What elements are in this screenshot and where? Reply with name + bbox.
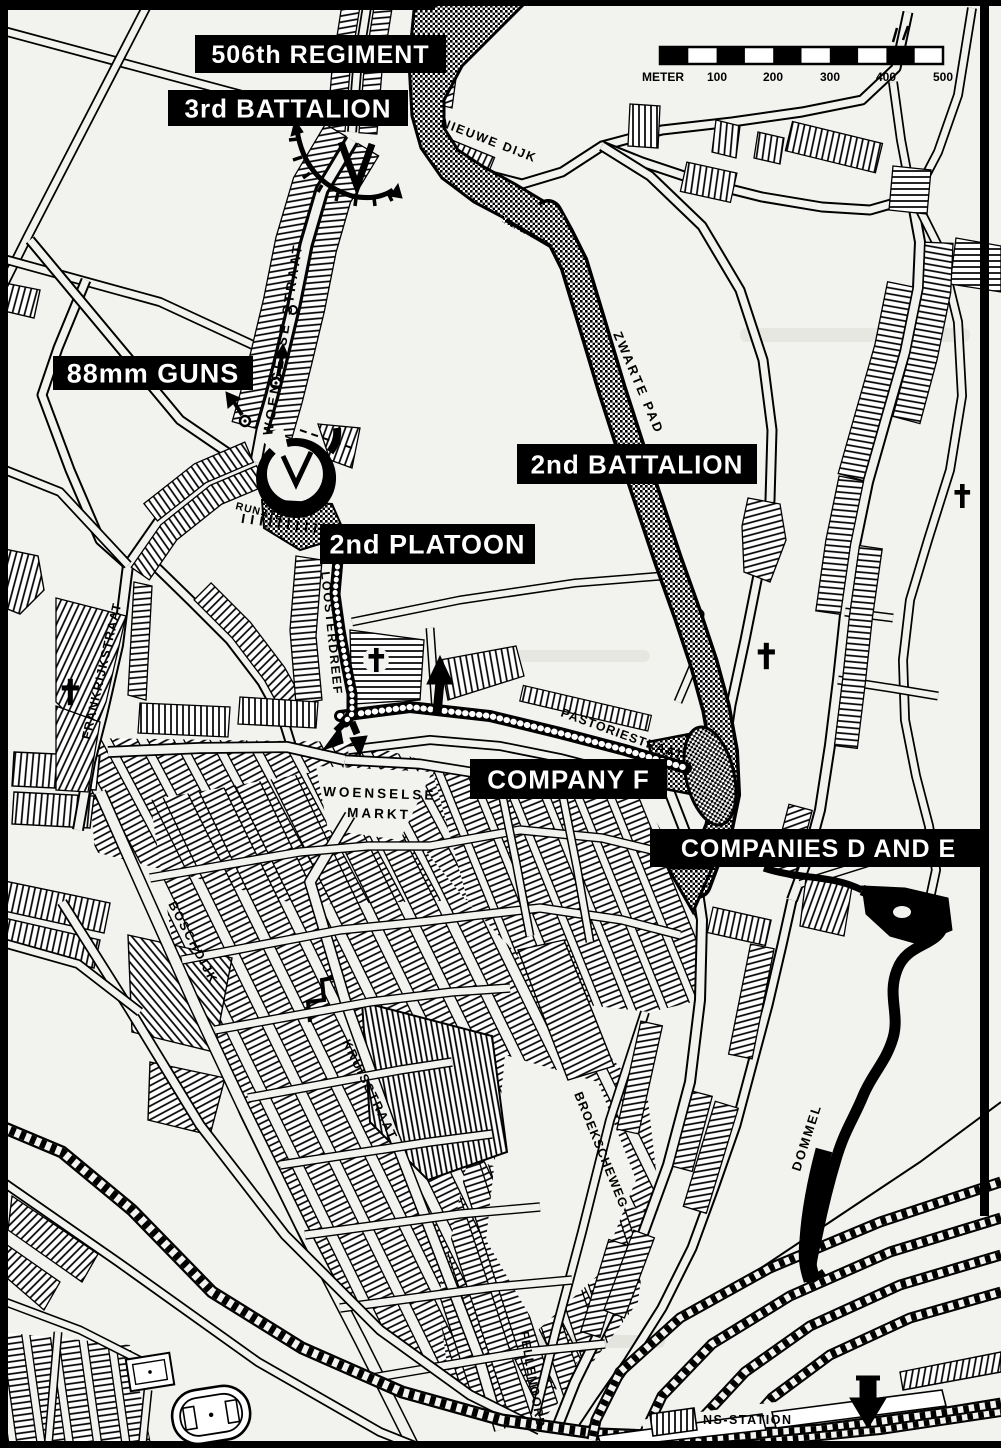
svg-text:3rd BATTALION: 3rd BATTALION <box>184 93 391 123</box>
svg-text:88mm GUNS: 88mm GUNS <box>67 359 240 389</box>
svg-text:506th REGIMENT: 506th REGIMENT <box>211 41 429 69</box>
svg-text:100: 100 <box>707 70 727 84</box>
svg-text:500: 500 <box>933 70 953 84</box>
svg-text:COMPANY F: COMPANY F <box>487 764 650 794</box>
svg-text:2nd PLATOON: 2nd PLATOON <box>329 530 525 560</box>
svg-text:200: 200 <box>763 70 783 84</box>
svg-text:COMPANIES D AND E: COMPANIES D AND E <box>681 835 956 863</box>
svg-text:NS-STATION: NS-STATION <box>703 1413 793 1427</box>
svg-text:400: 400 <box>876 70 896 84</box>
svg-text:MARKT: MARKT <box>347 805 411 822</box>
svg-text:METER: METER <box>642 70 684 84</box>
svg-text:2nd BATTALION: 2nd BATTALION <box>531 449 744 479</box>
svg-text:300: 300 <box>820 70 840 84</box>
